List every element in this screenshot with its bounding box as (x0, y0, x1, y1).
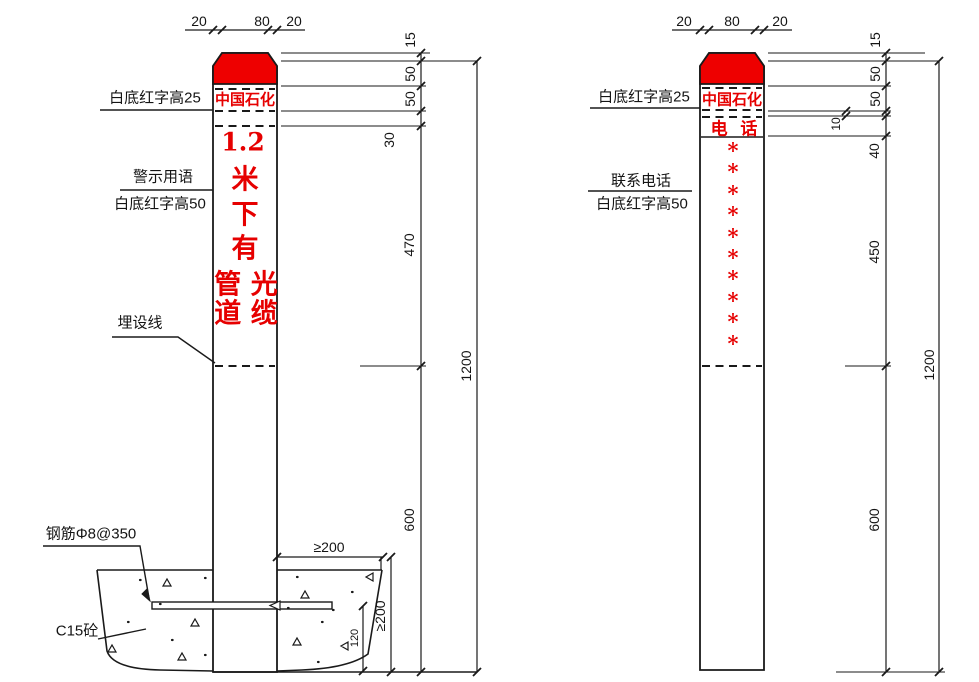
warning-label-bottom: 白底红字高50 (114, 193, 206, 214)
left-post-linework (43, 26, 481, 676)
left-brand-text: 中国石化 (215, 89, 275, 110)
burial-line-label: 埋设线 (117, 312, 162, 333)
right-dim-10: 10 (829, 117, 843, 130)
right-dim-1200: 1200 (921, 349, 937, 380)
foundation-height-dim: ≥200 (372, 600, 388, 631)
right-post-red-cap (700, 53, 764, 84)
left-dim-30: 30 (381, 132, 397, 148)
rebar-label: 钢筋Φ8@350 (46, 523, 137, 544)
left-extension-lines (281, 53, 477, 366)
right-dim-450: 450 (866, 240, 882, 263)
phone-word: 电 话 (711, 115, 762, 140)
right-dim-50b: 50 (867, 91, 883, 107)
concrete-label: C15砼 (56, 620, 99, 641)
left-top-dim-20b: 20 (286, 13, 302, 29)
right-cap-label: 白底红字高25 (598, 86, 690, 107)
right-dim-50a: 50 (867, 66, 883, 82)
rebar-leader-arrowhead (142, 589, 150, 601)
right-top-dim-80: 80 (724, 13, 740, 29)
left-dim-50a: 50 (402, 66, 418, 82)
marker-post-drawing: 20 80 20 白底红字高25 中国石化 警示用语 白底红字高50 1.2 米… (0, 0, 979, 682)
warning-line-6: 道 缆 (214, 292, 277, 331)
left-dim-50b: 50 (402, 91, 418, 107)
phone-label-top: 联系电话 (611, 170, 671, 191)
left-top-dim-80: 80 (254, 13, 270, 29)
warning-line-1: 1.2 (221, 128, 265, 157)
left-post-red-cap (213, 53, 277, 84)
left-dim-470: 470 (401, 233, 417, 256)
phone-number-placeholder: * * * * * * * * * * (728, 140, 739, 354)
left-dim-600: 600 (401, 508, 417, 531)
left-dim-15: 15 (402, 32, 418, 48)
rebar (152, 602, 332, 609)
dim-120: 120 (349, 629, 361, 647)
right-post-linework (588, 26, 945, 676)
right-dim-600: 600 (866, 508, 882, 531)
right-top-dim-20a: 20 (676, 13, 692, 29)
warning-label-top: 警示用语 (133, 166, 193, 187)
right-dim-15: 15 (867, 32, 883, 48)
warning-line-2: 米 (232, 158, 259, 197)
right-top-dim-20b: 20 (772, 13, 788, 29)
warning-line-4: 有 (232, 227, 259, 266)
right-extension-lines (768, 53, 945, 672)
left-dim-1200: 1200 (458, 350, 474, 381)
left-top-dim-20a: 20 (191, 13, 207, 29)
left-label-leaders (43, 110, 215, 639)
foundation-width-dim: ≥200 (313, 539, 344, 555)
right-dim-40: 40 (866, 143, 882, 159)
phone-label-bottom: 白底红字高50 (596, 193, 688, 214)
left-cap-label: 白底红字高25 (109, 87, 201, 108)
right-brand-text: 中国石化 (702, 89, 762, 110)
